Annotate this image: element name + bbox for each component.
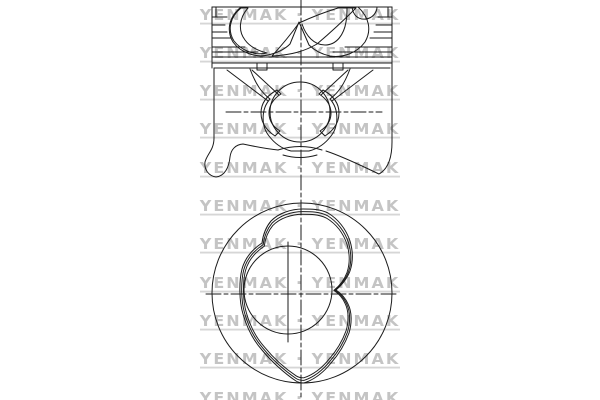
pin-boss	[227, 63, 373, 158]
piston-top-view	[206, 203, 398, 383]
piston-crown-outline	[212, 203, 392, 383]
piston-cross-section-view	[205, 7, 392, 177]
combustion-bowl-top-outline	[240, 209, 352, 383]
piston-skirt	[205, 63, 392, 177]
piston-technical-drawing	[0, 0, 600, 400]
piston-product-image: YENMAK · YENMAKYENMAK · YENMAKYENMAK · Y…	[0, 0, 600, 400]
combustion-bowl-section	[229, 7, 377, 56]
